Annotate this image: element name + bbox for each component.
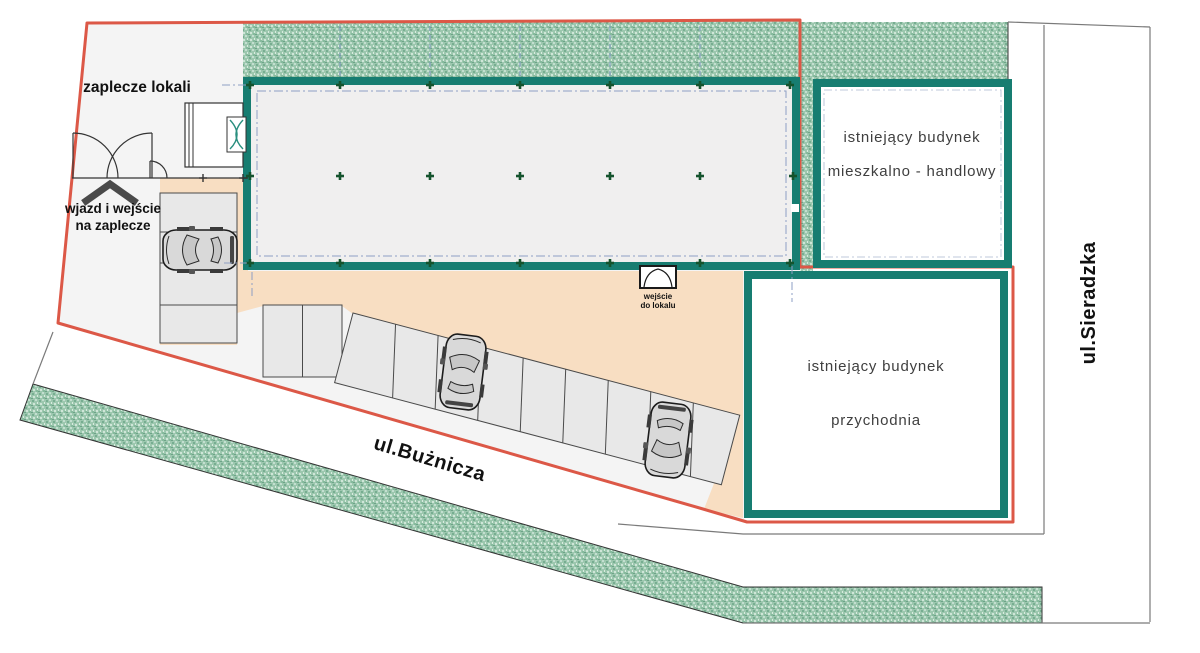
green-strip-between-buildings	[800, 79, 813, 271]
car-left-column	[163, 226, 237, 274]
label-building-clinic-line1: istniejący budynek	[808, 358, 945, 375]
wall-marker-dot	[791, 204, 799, 212]
label-wejscie-line1: wejście	[643, 292, 673, 301]
label-building-clinic-line2: przychodnia	[831, 412, 921, 429]
existing-building-clinic	[748, 275, 1004, 514]
green-block-topright	[800, 22, 1008, 79]
label-building-residential-line2: mieszkalno - handlowy	[828, 163, 997, 180]
green-strip-top	[243, 21, 800, 79]
label-building-residential-line1: istniejący budynek	[844, 129, 981, 146]
label-street-sieradzka: ul.Sieradzka	[1078, 241, 1100, 364]
label-wjazd-line1: wjazd i wejście	[64, 201, 162, 216]
site-plan-svg: zaplecze lokali wjazd i wejście na zaple…	[0, 0, 1200, 653]
main-building	[247, 81, 796, 266]
label-wejscie-line2: do lokalu	[640, 301, 675, 310]
label-zaplecze: zaplecze lokali	[83, 79, 191, 96]
entrance-to-premises	[640, 266, 676, 288]
site-plan-page: zaplecze lokali wjazd i wejście na zaple…	[0, 0, 1200, 653]
parking-middle-pair	[263, 305, 342, 377]
entrance-vestibule	[185, 103, 246, 167]
label-wjazd-line2: na zaplecze	[75, 218, 151, 233]
